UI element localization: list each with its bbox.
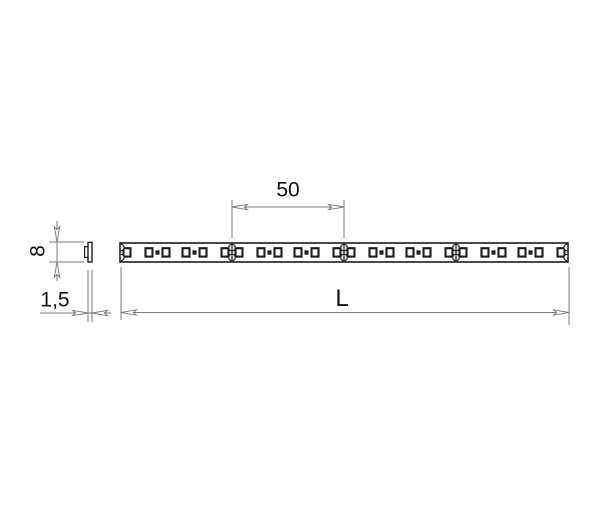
led-chip	[348, 248, 355, 256]
led-chip	[146, 248, 153, 256]
led-chip	[236, 248, 243, 256]
end-notch	[564, 254, 567, 260]
led-chip	[370, 248, 377, 256]
led-chip	[312, 248, 319, 256]
led-chip	[183, 248, 190, 256]
dimension-label-length: L	[335, 287, 348, 311]
drawing-canvas: 50 8 1,5 L	[0, 0, 600, 530]
led-chip	[519, 248, 526, 256]
led-chip	[558, 248, 565, 256]
led-chip	[124, 248, 131, 256]
led-chip	[424, 248, 431, 256]
led-chip	[334, 248, 341, 256]
led-chip	[536, 248, 543, 256]
led-chip	[460, 248, 467, 256]
resistor-dot	[417, 250, 421, 254]
led-chip	[200, 248, 207, 256]
resistor-dot	[529, 250, 533, 254]
led-chip	[499, 248, 506, 256]
resistor-dot	[268, 250, 272, 254]
dimension-label-width: 8	[28, 245, 49, 257]
led-chip	[163, 248, 170, 256]
led-chip	[258, 248, 265, 256]
resistor-dot	[305, 250, 309, 254]
end-notch	[121, 254, 124, 260]
end-notch	[564, 244, 567, 250]
resistor-dot	[193, 250, 197, 254]
led-chip	[407, 248, 414, 256]
led-strip-dimension-drawing	[0, 0, 600, 530]
resistor-dot	[492, 250, 496, 254]
led-chip	[222, 248, 229, 256]
led-chip	[295, 248, 302, 256]
dimension-label-thickness: 1,5	[40, 290, 69, 311]
led-chip	[275, 248, 282, 256]
end-notch	[121, 244, 124, 250]
dimension-label-pitch: 50	[276, 180, 299, 201]
resistor-dot	[380, 250, 384, 254]
profile-pcb	[88, 242, 92, 262]
led-chip	[387, 248, 394, 256]
resistor-dot	[156, 250, 160, 254]
led-chip	[482, 248, 489, 256]
led-chip	[446, 248, 453, 256]
